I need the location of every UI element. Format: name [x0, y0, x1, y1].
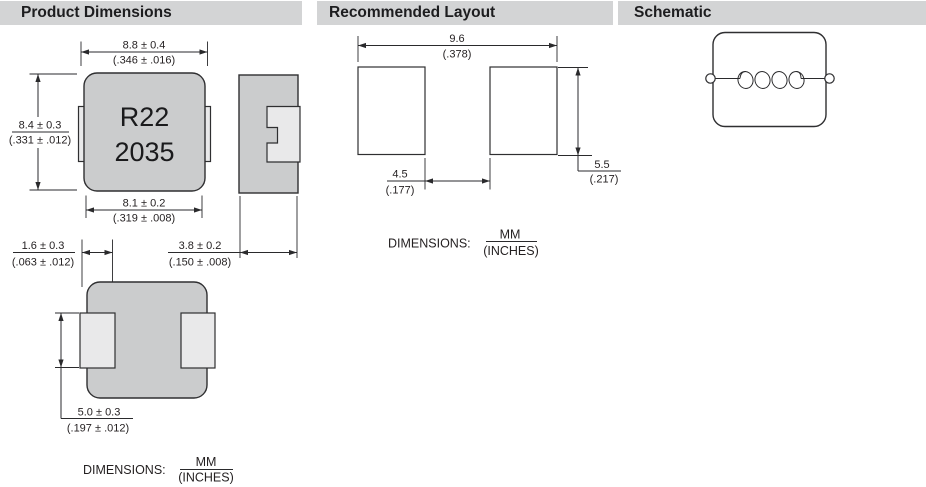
- units-numerator: MM: [196, 455, 217, 469]
- dim-body-height: 8.4 ± 0.3 (.331 ± .012): [9, 74, 77, 190]
- dim-inches: (.217): [590, 174, 619, 186]
- arrowhead-left: [425, 178, 433, 183]
- units-denominator: (INCHES): [178, 471, 234, 485]
- arrowhead-left: [86, 207, 94, 212]
- terminal-node-right: [825, 74, 834, 83]
- dim-mm: 9.6: [449, 33, 464, 45]
- units-note-layout: DIMENSIONS: MM (INCHES): [388, 228, 539, 259]
- dim-top-width: 8.8 ± 0.4 (.346 ± .016): [81, 40, 208, 67]
- dim-inches: (.177): [386, 185, 415, 197]
- units-numerator: MM: [500, 228, 521, 242]
- part-marking-line1: R22: [120, 102, 170, 132]
- technical-drawing-canvas: R22 2035 8.8 ± 0.4 (.346 ± .016) 8.4 ± 0…: [0, 0, 926, 487]
- arrowhead-up: [58, 313, 63, 321]
- dim-inches: (.319 ± .008): [113, 213, 175, 225]
- arrowhead-right: [482, 178, 490, 183]
- arrowhead-left: [82, 250, 90, 255]
- layout-pads: [358, 67, 557, 155]
- dim-bottom-width: 8.1 ± 0.2 (.319 ± .008): [86, 196, 202, 225]
- part-marking-line2: 2035: [114, 137, 174, 167]
- arrowhead-left: [358, 43, 366, 48]
- arrowhead-right: [200, 49, 208, 54]
- dim-layout-span: 9.6 (.378): [358, 33, 557, 62]
- dim-pad-gap: 4.5 (.177): [386, 158, 490, 197]
- arrowhead-up: [35, 74, 40, 82]
- units-label: DIMENSIONS:: [83, 463, 166, 477]
- front-view: R22 2035: [79, 73, 211, 191]
- arrowhead-down: [35, 182, 40, 190]
- arrowhead-left: [81, 49, 89, 54]
- units-note-product: DIMENSIONS: MM (INCHES): [83, 455, 234, 485]
- arrowhead-right: [194, 207, 202, 212]
- dim-inches: (.150 ± .008): [169, 257, 231, 269]
- bottom-view: [80, 282, 215, 398]
- dim-mm: 8.1 ± 0.2: [123, 198, 166, 210]
- schematic-symbol: [706, 33, 834, 127]
- schematic-box: [713, 33, 826, 127]
- arrowhead-down: [575, 148, 580, 156]
- dim-mm: 3.8 ± 0.2: [179, 240, 222, 252]
- dim-mm: 8.4 ± 0.3: [19, 120, 62, 132]
- layout-left-pad: [358, 67, 425, 155]
- dim-inches: (.063 ± .012): [12, 257, 74, 269]
- units-denominator: (INCHES): [483, 244, 539, 258]
- arrowhead-right: [289, 250, 297, 255]
- units-label: DIMENSIONS:: [388, 237, 471, 251]
- dim-mm: 5.5: [594, 159, 609, 171]
- arrowhead-up: [575, 68, 580, 76]
- side-view: [239, 75, 300, 193]
- dim-pad-height: 5.5 (.217): [558, 68, 621, 186]
- dim-inches: (.346 ± .016): [113, 55, 175, 67]
- arrowhead-right: [549, 43, 557, 48]
- dim-mm: 5.0 ± 0.3: [78, 407, 121, 419]
- inductor-body: [84, 73, 205, 191]
- bottom-left-pad-terminal: [80, 313, 115, 368]
- terminal-node-left: [706, 74, 715, 83]
- bottom-right-pad-terminal: [181, 313, 215, 368]
- layout-right-pad: [490, 67, 557, 155]
- arrowhead-left: [240, 250, 248, 255]
- dim-inches: (.331 ± .012): [9, 135, 71, 147]
- dim-inches: (.197 ± .012): [67, 423, 129, 435]
- arrowhead-down: [58, 360, 63, 368]
- dim-mm: 8.8 ± 0.4: [123, 40, 166, 52]
- dim-terminal-width: 1.6 ± 0.3 (.063 ± .012): [12, 240, 113, 288]
- dim-inches: (.378): [443, 49, 472, 61]
- arrowhead-right: [105, 250, 113, 255]
- dim-mm: 1.6 ± 0.3: [22, 240, 65, 252]
- dim-mm: 4.5: [392, 169, 407, 181]
- dim-side-thickness: 3.8 ± 0.2 (.150 ± .008): [168, 196, 297, 269]
- datasheet-drawing-page: Product Dimensions Recommended Layout Sc…: [0, 0, 926, 487]
